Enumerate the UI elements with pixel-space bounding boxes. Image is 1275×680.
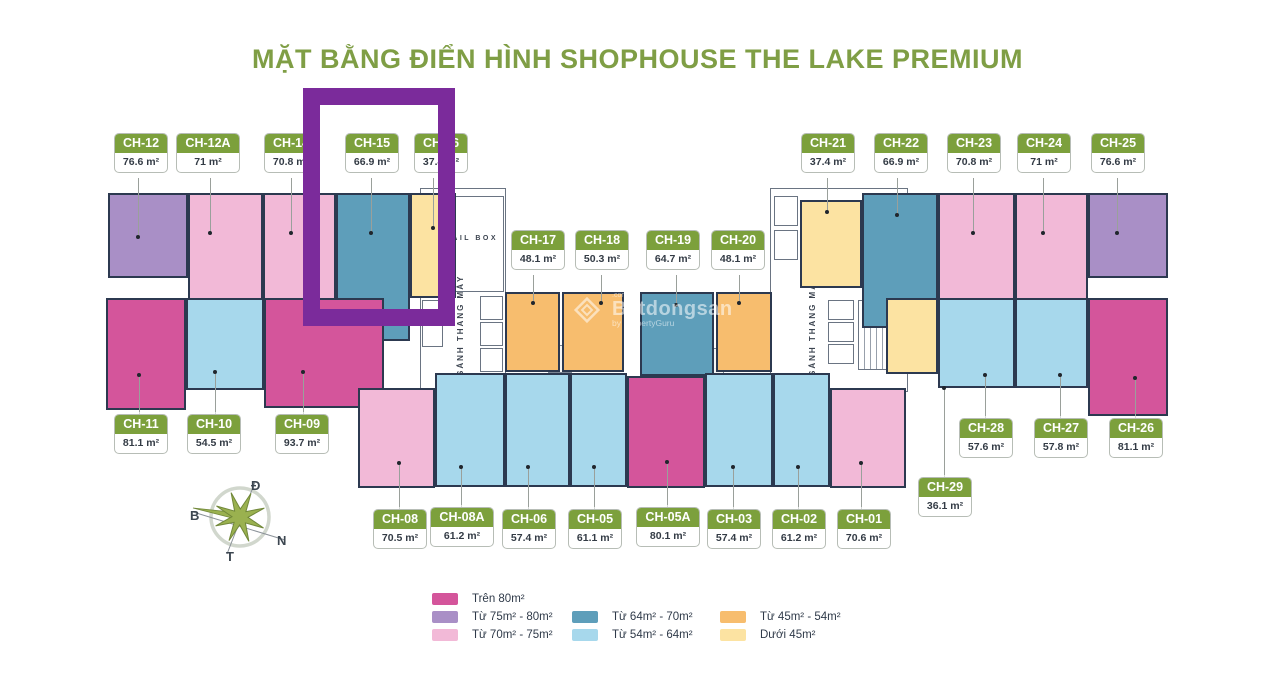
label-connector	[291, 178, 292, 233]
unit-id: CH-08A	[431, 508, 493, 527]
unit-block-ch-05	[570, 373, 627, 487]
legend-label: Từ 54m² - 64m²	[612, 629, 693, 641]
label-connector	[210, 178, 211, 233]
label-connector	[533, 275, 534, 303]
label-connector	[985, 375, 986, 418]
label-connector	[528, 467, 529, 509]
unit-label-ch-09: CH-0993.7 m²	[275, 414, 329, 454]
watermark-logo-icon	[570, 293, 604, 327]
label-connector	[399, 463, 400, 509]
compass-east-label: Đ	[251, 478, 260, 493]
unit-dot	[289, 231, 293, 235]
unit-dot	[796, 465, 800, 469]
unit-label-ch-18: CH-1850.3 m²	[575, 230, 629, 270]
label-connector	[461, 467, 462, 507]
unit-area: 81.1 m²	[115, 434, 167, 453]
unit-dot	[859, 461, 863, 465]
unit-label-ch-08: CH-0870.5 m²	[373, 509, 427, 549]
unit-label-ch-24: CH-2471 m²	[1017, 133, 1071, 173]
unit-id: CH-22	[875, 134, 927, 153]
legend-chip	[572, 629, 598, 641]
unit-id: CH-08	[374, 510, 426, 529]
legend-chip	[720, 629, 746, 641]
legend-item: Từ 45m² - 54m²	[720, 611, 841, 623]
unit-label-ch-29: CH-2936.1 m²	[918, 477, 972, 517]
unit-dot	[301, 370, 305, 374]
unit-area: 70.8 m²	[948, 153, 1000, 172]
label-connector	[861, 463, 862, 509]
unit-id: CH-28	[960, 419, 1012, 438]
unit-dot	[1041, 231, 1045, 235]
unit-area: 48.1 m²	[512, 250, 564, 269]
label-connector	[798, 467, 799, 509]
unit-area: 48.1 m²	[712, 250, 764, 269]
unit-label-ch-06: CH-0657.4 m²	[502, 509, 556, 549]
unit-label-ch-19: CH-1964.7 m²	[646, 230, 700, 270]
unit-label-ch-27: CH-2757.8 m²	[1034, 418, 1088, 458]
unit-block-ch-08	[358, 388, 435, 488]
legend-chip	[432, 629, 458, 641]
unit-label-ch-12a: CH-12A71 m²	[176, 133, 240, 173]
unit-label-ch-25: CH-2576.6 m²	[1091, 133, 1145, 173]
unit-area: 70.6 m²	[838, 529, 890, 548]
unit-block-ch-05a	[627, 376, 705, 488]
unit-id: CH-12A	[177, 134, 239, 153]
unit-dot	[942, 386, 946, 390]
legend-chip	[572, 611, 598, 623]
legend-item: Từ 70m² - 75m²	[432, 629, 553, 641]
unit-block-ch-10	[186, 298, 264, 390]
label-connector	[138, 178, 139, 237]
unit-dot	[1058, 373, 1062, 377]
unit-dot	[731, 465, 735, 469]
unit-dot	[137, 373, 141, 377]
unit-label-ch-11: CH-1181.1 m²	[114, 414, 168, 454]
unit-area: 57.4 m²	[708, 529, 760, 548]
unit-dot	[213, 370, 217, 374]
legend-label: Từ 64m² - 70m²	[612, 611, 693, 623]
legend-chip	[432, 611, 458, 623]
unit-id: CH-24	[1018, 134, 1070, 153]
unit-area: 76.6 m²	[1092, 153, 1144, 172]
unit-label-ch-12: CH-1276.6 m²	[114, 133, 168, 173]
unit-area: 61.2 m²	[431, 527, 493, 546]
unit-block-ch-12	[108, 193, 188, 278]
unit-id: CH-09	[276, 415, 328, 434]
floor-plan-page: MẶT BẰNG ĐIỂN HÌNH SHOPHOUSE THE LAKE PR…	[0, 0, 1275, 680]
label-connector	[827, 178, 828, 212]
unit-id: CH-12	[115, 134, 167, 153]
label-connector	[1135, 378, 1136, 418]
legend-label: Dưới 45m²	[760, 629, 816, 641]
unit-area: 61.2 m²	[773, 529, 825, 548]
legend-label: Từ 75m² - 80m²	[472, 611, 553, 623]
unit-label-ch-21: CH-2137.4 m²	[801, 133, 855, 173]
unit-dot	[665, 460, 669, 464]
unit-id: CH-10	[188, 415, 240, 434]
unit-area: 81.1 m²	[1110, 438, 1162, 457]
legend-label: Trên 80m²	[472, 593, 525, 605]
unit-label-ch-02: CH-0261.2 m²	[772, 509, 826, 549]
unit-block-ch-26	[1088, 298, 1168, 416]
label-connector	[667, 462, 668, 507]
unit-id: CH-05	[569, 510, 621, 529]
unit-id: CH-20	[712, 231, 764, 250]
label-connector	[1060, 375, 1061, 418]
unit-label-ch-08a: CH-08A61.2 m²	[430, 507, 494, 547]
unit-label-ch-17: CH-1748.1 m²	[511, 230, 565, 270]
legend-label: Từ 70m² - 75m²	[472, 629, 553, 641]
legend-item: Trên 80m²	[432, 593, 525, 605]
label-connector	[897, 178, 898, 215]
highlight-rectangle-ch-15	[303, 88, 455, 326]
unit-area: 66.9 m²	[875, 153, 927, 172]
watermark-tagline: by PropertyGuru	[612, 319, 733, 328]
unit-id: CH-17	[512, 231, 564, 250]
unit-dot	[459, 465, 463, 469]
unit-dot	[825, 210, 829, 214]
unit-dot	[1115, 231, 1119, 235]
unit-id: CH-02	[773, 510, 825, 529]
label-connector	[594, 467, 595, 509]
label-connector	[215, 372, 216, 414]
unit-label-ch-01: CH-0170.6 m²	[837, 509, 891, 549]
legend-item: Từ 64m² - 70m²	[572, 611, 693, 623]
unit-label-ch-03: CH-0357.4 m²	[707, 509, 761, 549]
unit-label-ch-05a: CH-05A80.1 m²	[636, 507, 700, 547]
label-connector	[944, 388, 945, 477]
unit-area: 54.5 m²	[188, 434, 240, 453]
compass-south-label: N	[277, 533, 286, 548]
label-connector	[733, 467, 734, 509]
compass-rose-icon	[185, 462, 297, 574]
unit-area: 80.1 m²	[637, 527, 699, 546]
unit-area: 70.5 m²	[374, 529, 426, 548]
unit-block-ch-08a	[435, 373, 505, 487]
unit-dot	[136, 235, 140, 239]
label-connector	[1117, 178, 1118, 233]
unit-block-ch-01	[830, 388, 906, 488]
unit-dot	[397, 461, 401, 465]
unit-block-ch-03	[705, 373, 773, 487]
unit-id: CH-21	[802, 134, 854, 153]
legend-item: Dưới 45m²	[720, 629, 816, 641]
compass-west-label: T	[226, 549, 234, 564]
unit-block-ch-21	[800, 200, 862, 288]
unit-area: 64.7 m²	[647, 250, 699, 269]
unit-id: CH-23	[948, 134, 1000, 153]
unit-dot	[895, 213, 899, 217]
unit-area: 61.1 m²	[569, 529, 621, 548]
label-connector	[303, 372, 304, 414]
unit-area: 57.6 m²	[960, 438, 1012, 457]
unit-dot	[208, 231, 212, 235]
unit-block-ch-11	[106, 298, 186, 410]
unit-block-ch-29	[886, 298, 938, 374]
unit-area: 71 m²	[1018, 153, 1070, 172]
unit-id: CH-19	[647, 231, 699, 250]
unit-label-ch-26: CH-2681.1 m²	[1109, 418, 1163, 458]
unit-dot	[526, 465, 530, 469]
unit-id: CH-27	[1035, 419, 1087, 438]
unit-area: 57.8 m²	[1035, 438, 1087, 457]
label-connector	[973, 178, 974, 233]
compass-north-label: B	[190, 508, 199, 523]
unit-id: CH-01	[838, 510, 890, 529]
unit-area: 57.4 m²	[503, 529, 555, 548]
unit-block-ch-06	[505, 373, 570, 487]
units-layer: CH-1276.6 m²CH-12A71 m²CH-1470.8 m²CH-15…	[0, 0, 1275, 680]
unit-id: CH-03	[708, 510, 760, 529]
unit-area: 37.4 m²	[802, 153, 854, 172]
unit-block-ch-28	[938, 298, 1015, 388]
legend-chip	[432, 593, 458, 605]
unit-dot	[1133, 376, 1137, 380]
unit-dot	[983, 373, 987, 377]
unit-area: 93.7 m²	[276, 434, 328, 453]
label-connector	[1043, 178, 1044, 233]
watermark-brand: Batdongsan	[612, 299, 733, 319]
unit-id: CH-05A	[637, 508, 699, 527]
label-connector	[139, 375, 140, 414]
unit-block-ch-02	[773, 373, 830, 487]
unit-label-ch-10: CH-1054.5 m²	[187, 414, 241, 454]
unit-dot	[592, 465, 596, 469]
unit-area: 36.1 m²	[919, 497, 971, 516]
unit-id: CH-18	[576, 231, 628, 250]
unit-block-ch-27	[1015, 298, 1088, 388]
legend-item: Từ 75m² - 80m²	[432, 611, 553, 623]
unit-area: 50.3 m²	[576, 250, 628, 269]
watermark: .com.vn Batdongsan by PropertyGuru	[570, 292, 770, 328]
unit-label-ch-23: CH-2370.8 m²	[947, 133, 1001, 173]
legend-label: Từ 45m² - 54m²	[760, 611, 841, 623]
unit-label-ch-05: CH-0561.1 m²	[568, 509, 622, 549]
unit-id: CH-26	[1110, 419, 1162, 438]
legend-chip	[720, 611, 746, 623]
unit-area: 76.6 m²	[115, 153, 167, 172]
unit-id: CH-11	[115, 415, 167, 434]
unit-dot	[971, 231, 975, 235]
unit-label-ch-20: CH-2048.1 m²	[711, 230, 765, 270]
legend-item: Từ 54m² - 64m²	[572, 629, 693, 641]
unit-id: CH-25	[1092, 134, 1144, 153]
unit-dot	[531, 301, 535, 305]
unit-label-ch-28: CH-2857.6 m²	[959, 418, 1013, 458]
unit-label-ch-22: CH-2266.9 m²	[874, 133, 928, 173]
unit-block-ch-25	[1088, 193, 1168, 278]
unit-area: 71 m²	[177, 153, 239, 172]
unit-id: CH-06	[503, 510, 555, 529]
unit-id: CH-29	[919, 478, 971, 497]
